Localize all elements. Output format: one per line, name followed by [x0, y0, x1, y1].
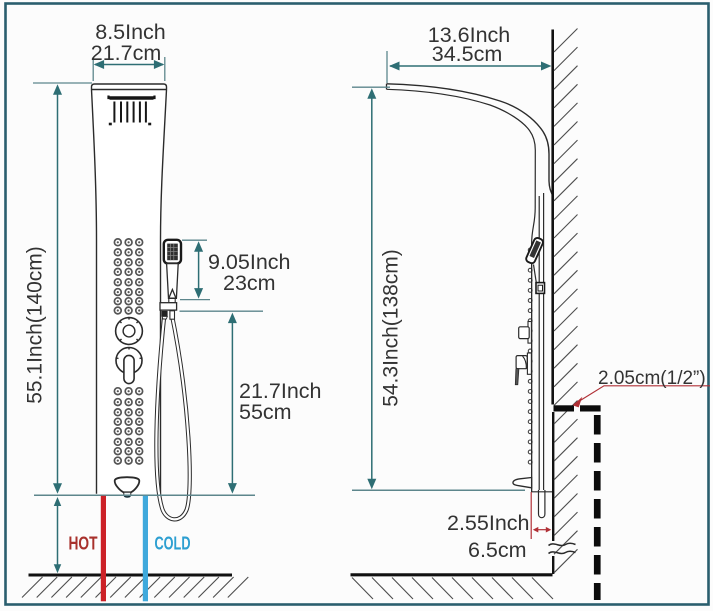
svg-text:HOT: HOT	[69, 533, 99, 554]
svg-text:55cm: 55cm	[239, 400, 292, 424]
svg-text:2.05cm(1/2”): 2.05cm(1/2”)	[598, 368, 706, 389]
svg-text:21.7cm: 21.7cm	[91, 41, 162, 65]
svg-text:34.5cm: 34.5cm	[432, 42, 503, 66]
svg-text:55.1Inch(140cm): 55.1Inch(140cm)	[24, 246, 47, 404]
svg-text:2.55Inch: 2.55Inch	[447, 511, 529, 535]
svg-text:COLD: COLD	[155, 533, 191, 554]
svg-text:23cm: 23cm	[223, 271, 276, 295]
svg-text:54.3Inch(138cm): 54.3Inch(138cm)	[380, 249, 403, 407]
svg-text:6.5cm: 6.5cm	[468, 538, 527, 562]
